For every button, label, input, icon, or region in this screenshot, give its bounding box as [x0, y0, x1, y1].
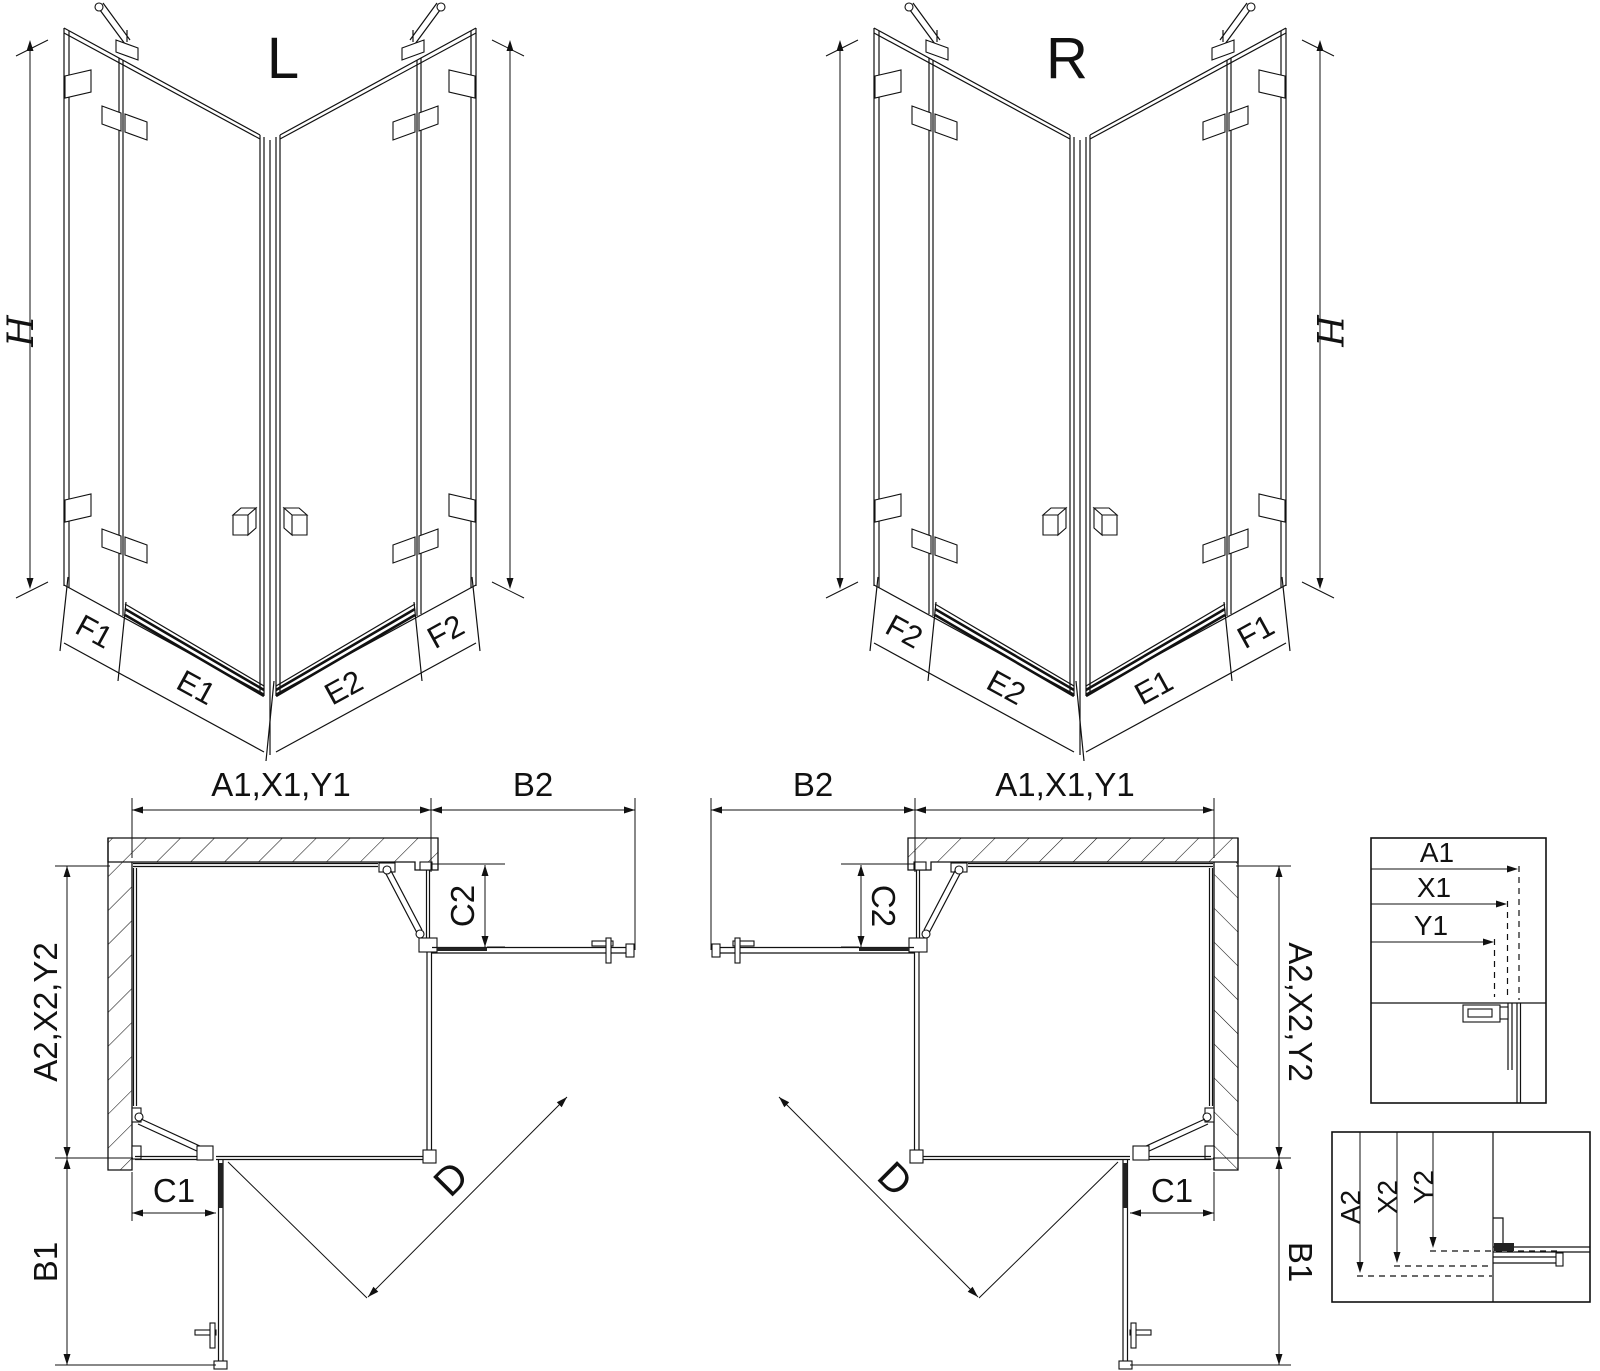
- detail-box-vertical-measures: A2 X2 Y2: [1332, 1132, 1590, 1302]
- perspective-right-view: R H F2 E2 E1 F1: [826, 3, 1349, 761]
- fixed-bottom-dimension-label: C1: [1151, 1172, 1193, 1209]
- base-segment-label: F2: [421, 608, 470, 656]
- fixed-top-dimension-label: C2: [444, 885, 481, 927]
- drawing-canvas: L H F1 E1 E2 F2 R H F2 E2 E1 F1 A1,X1,Y1…: [0, 0, 1600, 1371]
- open-door-bottom-dimension-label: B1: [27, 1242, 64, 1282]
- base-segment-label: E1: [171, 663, 221, 712]
- base-segment-label: F2: [880, 608, 929, 656]
- fixed-bottom-dimension-label: C1: [153, 1172, 195, 1209]
- base-segment-label: F1: [70, 608, 119, 656]
- open-door-top-dimension-label: B2: [793, 766, 833, 803]
- wall-hatch: [908, 838, 1238, 862]
- detail-measure-label: Y1: [1414, 910, 1448, 941]
- shower-enclosure-technical-drawing: L H F1 E1 E2 F2 R H F2 E2 E1 F1 A1,X1,Y1…: [0, 0, 1600, 1371]
- plan-right-view: A1,X1,Y1 B2 C2 A2,X2,Y2 C1 B1 D: [711, 766, 1319, 1369]
- plan-left-view: A1,X1,Y1 B2 C2 A2,X2,Y2 C1 B1 D: [27, 766, 635, 1369]
- variant-right-label: R: [1046, 26, 1088, 91]
- open-door-bottom-dimension-label: B1: [1282, 1242, 1319, 1282]
- side-dimension-label: A2,X2,Y2: [1282, 942, 1319, 1081]
- detail-measure-label: Y2: [1408, 1170, 1439, 1204]
- detail-measure-label: A1: [1420, 837, 1454, 868]
- variant-left-label: L: [267, 26, 299, 91]
- perspective-left-view: L H F1 E1 E2 F2: [1, 3, 524, 761]
- fixed-top-dimension-label: C2: [865, 885, 902, 927]
- base-segment-label: E2: [319, 663, 369, 712]
- base-segment-label: E2: [981, 663, 1031, 712]
- height-dimension-label-left: H: [1, 315, 42, 348]
- base-segment-label: F1: [1231, 608, 1280, 656]
- height-dimension-label-right: H: [1308, 314, 1349, 347]
- open-door-top-dimension-label: B2: [513, 766, 553, 803]
- detail-box-horizontal-measures: A1 X1 Y1: [1371, 837, 1546, 1103]
- detail-measure-label: X1: [1417, 872, 1451, 903]
- wall-hatch: [1214, 862, 1238, 1170]
- wall-hatch: [108, 862, 132, 1170]
- detail-measure-label: A2: [1335, 1190, 1366, 1224]
- side-dimension-label: A2,X2,Y2: [27, 942, 64, 1081]
- width-dimension-label: A1,X1,Y1: [211, 766, 350, 803]
- base-segment-label: E1: [1129, 663, 1179, 712]
- wall-hatch: [108, 838, 438, 862]
- width-dimension-label: A1,X1,Y1: [995, 766, 1134, 803]
- detail-measure-label: X2: [1372, 1180, 1403, 1214]
